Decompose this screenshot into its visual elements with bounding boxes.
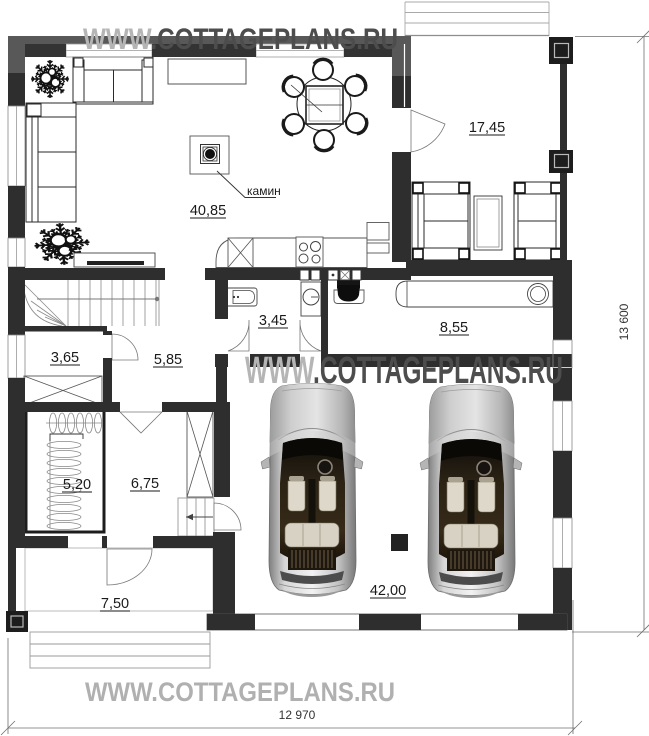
svg-text:40,85: 40,85	[190, 203, 226, 219]
svg-text:WWW.COTTAGEPLANS.RU: WWW.COTTAGEPLANS.RU	[83, 23, 398, 56]
svg-text:камин: камин	[247, 184, 281, 198]
svg-text:17,45: 17,45	[469, 120, 505, 136]
svg-text:12 970: 12 970	[279, 708, 316, 722]
svg-text:8,55: 8,55	[440, 320, 468, 336]
svg-text:3,65: 3,65	[51, 350, 79, 366]
svg-text:3,45: 3,45	[259, 313, 287, 329]
svg-text:WWW.COTTAGEPLANS.RU: WWW.COTTAGEPLANS.RU	[245, 350, 563, 392]
svg-text:WWW.COTTAGEPLANS.RU: WWW.COTTAGEPLANS.RU	[85, 677, 395, 707]
svg-text:5,20: 5,20	[63, 477, 91, 493]
svg-text:6,75: 6,75	[131, 476, 159, 492]
svg-text:7,50: 7,50	[101, 596, 129, 612]
svg-text:42,00: 42,00	[370, 583, 406, 599]
svg-text:13 600: 13 600	[617, 303, 631, 340]
svg-text:5,85: 5,85	[154, 352, 182, 368]
